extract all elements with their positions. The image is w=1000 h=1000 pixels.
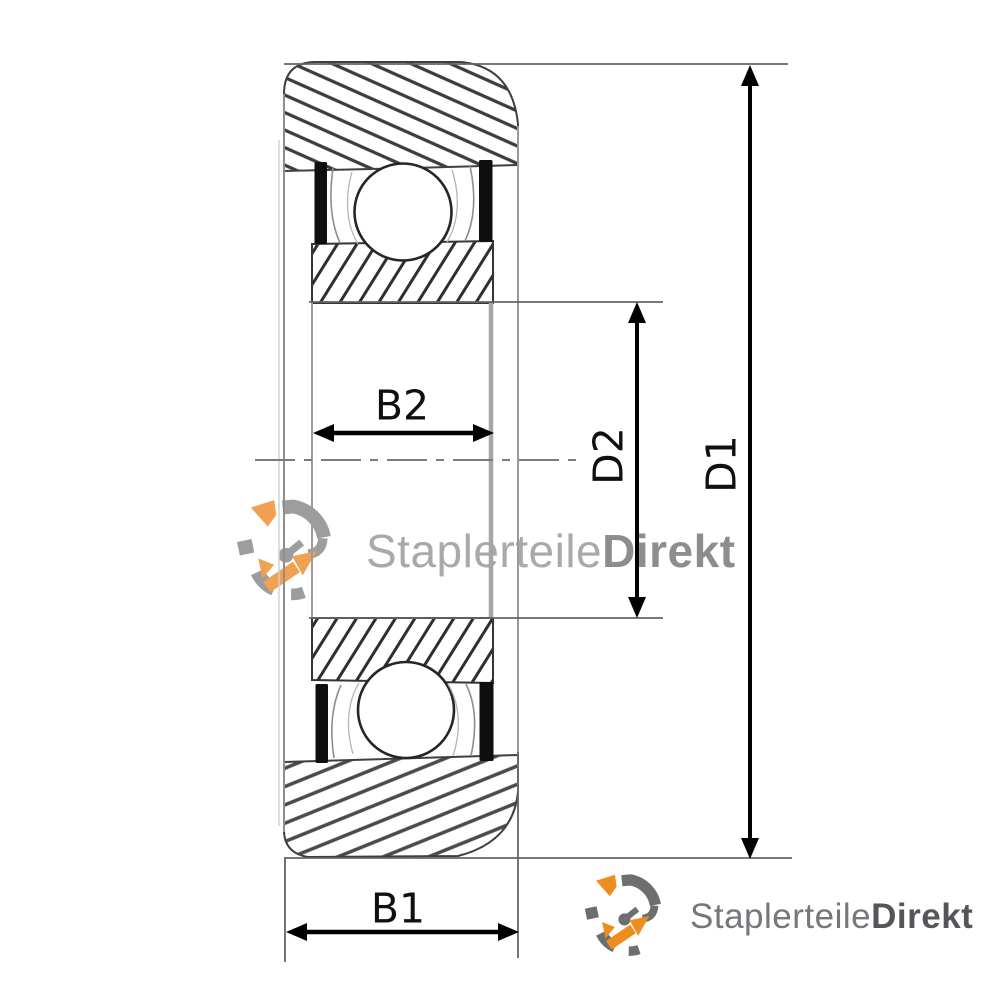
- footer-logo: StaplerteileDirekt: [584, 872, 973, 960]
- ball-top: [355, 164, 452, 261]
- outer-ring-bottom-section: [284, 755, 518, 857]
- gear-arrows-icon: [584, 872, 670, 960]
- brand-name-bold: Direkt: [871, 897, 973, 936]
- dim-label-b2: B2: [375, 386, 429, 427]
- dim-label-b1: B1: [371, 889, 425, 930]
- brand-wordmark: StaplerteileDirekt: [690, 899, 973, 934]
- outer-ring-top-section: [284, 62, 518, 171]
- bearing-diagram-page: StaplerteileDirekt: [0, 0, 1000, 1000]
- bearing-drawing: [0, 0, 1000, 1000]
- ball-bottom: [358, 662, 454, 758]
- dim-label-d1: D1: [702, 435, 743, 493]
- dim-label-d2: D2: [589, 427, 630, 485]
- brand-name-regular: Staplerteile: [690, 897, 871, 936]
